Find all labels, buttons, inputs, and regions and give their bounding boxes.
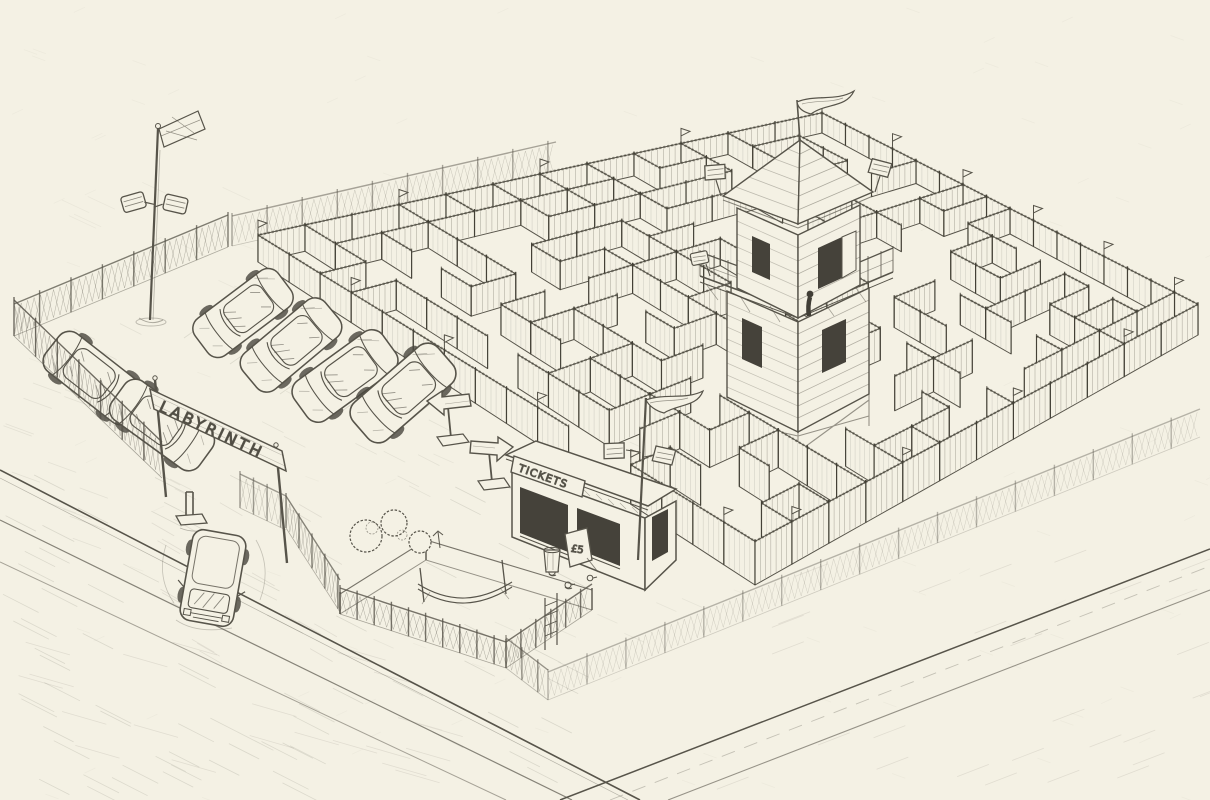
sketch-page: LABYRINTH [0,0,1210,800]
price-sign-text: £5 [570,544,584,557]
window-shutter [842,231,856,278]
waste-bin [544,547,560,572]
booth-door [652,509,668,561]
sketch-illustration: LABYRINTH [0,0,1210,800]
